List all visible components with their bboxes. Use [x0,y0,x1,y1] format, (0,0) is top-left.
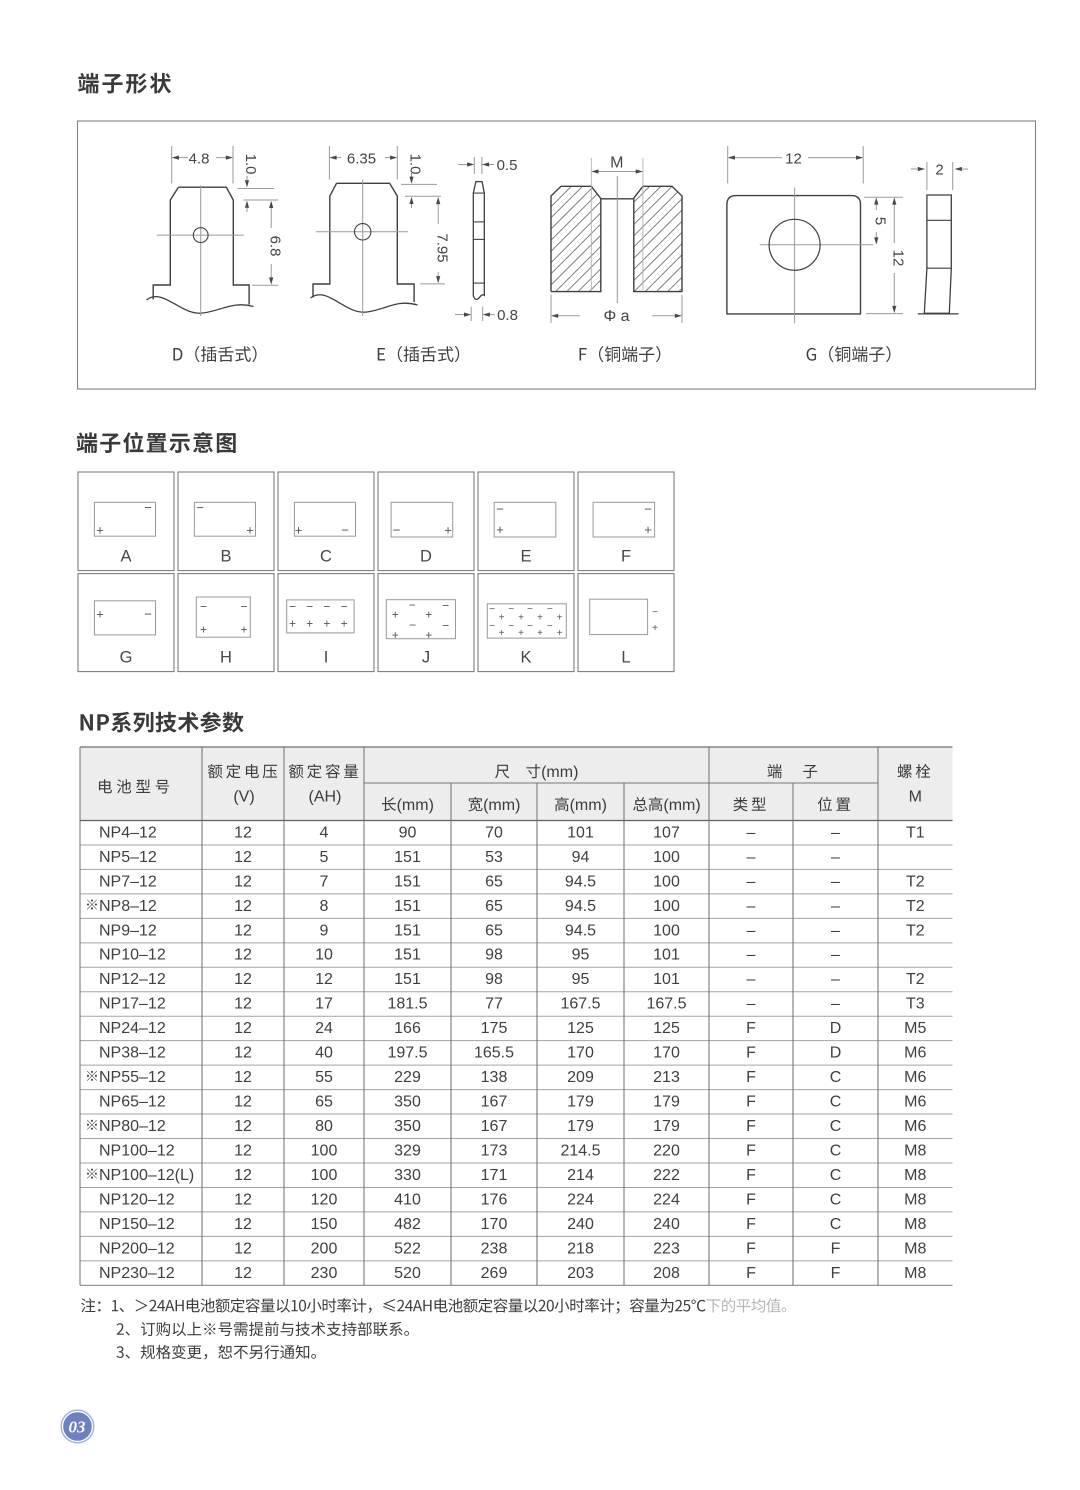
svg-text:NP17–12: NP17–12 [99,996,166,1013]
svg-text:100: 100 [311,1167,338,1184]
svg-text:M6: M6 [904,1094,926,1111]
svg-text:F: F [746,1045,756,1062]
svg-text:I: I [324,649,329,667]
svg-text:–: – [747,898,756,915]
svg-text:NP10–12: NP10–12 [99,947,166,964]
svg-text:179: 179 [567,1118,594,1135]
svg-text:(mm): (mm) [483,797,520,814]
svg-text:−: − [527,621,533,632]
svg-text:5: 5 [320,849,329,866]
svg-text:E: E [520,548,531,566]
svg-text:(mm): (mm) [541,764,578,781]
svg-text:269: 269 [481,1265,508,1282]
svg-text:+: + [246,523,254,538]
svg-text:M8: M8 [904,1167,926,1184]
svg-text:350: 350 [394,1094,421,1111]
svg-text:C: C [320,548,332,566]
svg-text:−: − [496,502,504,517]
svg-text:94: 94 [572,849,590,866]
svg-text:167.5: 167.5 [646,996,686,1013]
svg-text:167: 167 [481,1118,508,1135]
svg-text:151: 151 [394,873,421,890]
svg-text:–: – [747,824,756,841]
svg-text:–: – [747,947,756,964]
svg-text:NP9–12: NP9–12 [99,922,157,939]
svg-text:167.5: 167.5 [560,996,600,1013]
svg-text:NP8–12: NP8–12 [99,898,157,915]
svg-text:F: F [746,1069,756,1086]
svg-text:522: 522 [394,1240,421,1257]
svg-text:100: 100 [311,1142,338,1159]
svg-text:NP5–12: NP5–12 [99,849,157,866]
svg-text:213: 213 [653,1069,680,1086]
svg-text:+: + [295,523,303,538]
svg-text:7.95: 7.95 [434,233,451,262]
svg-text:NP120–12: NP120–12 [99,1191,175,1208]
svg-text:F: F [746,1167,756,1184]
svg-text:94.5: 94.5 [565,922,596,939]
svg-text:12: 12 [234,1240,252,1257]
svg-text:−: − [393,523,401,538]
svg-text:6.8: 6.8 [267,236,284,257]
svg-text:238: 238 [481,1240,508,1257]
svg-text:–: – [831,971,840,988]
svg-text:65: 65 [485,873,503,890]
svg-text:151: 151 [394,898,421,915]
svg-text:5: 5 [872,217,889,225]
svg-text:D: D [830,1045,842,1062]
svg-text:−: − [409,598,416,612]
svg-text:G: G [120,649,133,667]
svg-text:98: 98 [485,971,503,988]
svg-text:–: – [831,849,840,866]
svg-text:+: + [496,522,504,537]
svg-text:175: 175 [481,1020,508,1037]
svg-text:410: 410 [394,1191,421,1208]
svg-text:F: F [746,1142,756,1159]
svg-text:12: 12 [234,1118,252,1135]
svg-text:+: + [341,616,348,630]
svg-text:B: B [220,548,231,566]
svg-text:53: 53 [485,849,503,866]
svg-text:12: 12 [234,1069,252,1086]
svg-text:−: − [489,621,495,632]
svg-text:−: − [144,607,152,622]
svg-text:12: 12 [234,1265,252,1282]
svg-text:−: − [323,599,330,613]
svg-text:J: J [422,649,430,667]
svg-text:230: 230 [311,1265,338,1282]
svg-text:179: 179 [653,1118,680,1135]
svg-text:NP38–12: NP38–12 [99,1045,166,1062]
svg-text:138: 138 [481,1069,508,1086]
svg-text:NP12–12: NP12–12 [99,971,166,988]
svg-text:(mm): (mm) [570,797,607,814]
svg-text:T2: T2 [906,922,925,939]
svg-text:F: F [746,1020,756,1037]
svg-text:101: 101 [567,824,594,841]
svg-text:M8: M8 [904,1240,926,1257]
svg-text:−: − [527,604,533,615]
svg-text:520: 520 [394,1265,421,1282]
svg-text:–: – [831,873,840,890]
svg-text:12: 12 [234,996,252,1013]
svg-text:220: 220 [653,1142,680,1159]
svg-text:+: + [537,613,543,624]
svg-text:NP55–12: NP55–12 [99,1069,166,1086]
svg-text:12: 12 [234,1216,252,1233]
svg-text:(mm): (mm) [397,797,434,814]
svg-text:–: – [747,996,756,1013]
svg-text:200: 200 [311,1240,338,1257]
svg-text:197.5: 197.5 [387,1045,427,1062]
svg-text:C: C [830,1167,842,1184]
svg-text:−: − [341,523,349,538]
svg-text:151: 151 [394,922,421,939]
svg-text:179: 179 [653,1094,680,1111]
svg-text:–: – [747,971,756,988]
svg-text:170: 170 [481,1216,508,1233]
svg-text:12: 12 [315,971,333,988]
svg-text:0.5: 0.5 [497,157,518,174]
svg-text:T2: T2 [906,971,925,988]
svg-text:+: + [425,607,432,621]
svg-text:–: – [831,996,840,1013]
svg-text:F: F [621,548,631,566]
svg-text:NP4–12: NP4–12 [99,824,157,841]
svg-text:(AH): (AH) [309,789,342,806]
svg-text:–: – [747,849,756,866]
svg-text:M6: M6 [904,1045,926,1062]
svg-text:NP100–12: NP100–12 [99,1142,175,1159]
svg-text:+: + [425,628,432,642]
svg-text:−: − [644,502,652,517]
svg-text:12: 12 [234,849,252,866]
svg-text:2: 2 [935,162,943,179]
svg-text:107: 107 [653,824,680,841]
svg-text:D: D [420,548,432,566]
svg-text:−: − [306,599,313,613]
svg-text:1.0: 1.0 [407,154,424,175]
svg-text:D: D [830,1020,842,1037]
svg-text:330: 330 [394,1167,421,1184]
svg-text:214.5: 214.5 [560,1142,600,1159]
svg-text:12: 12 [234,1167,252,1184]
svg-text:98: 98 [485,947,503,964]
svg-text:NP150–12: NP150–12 [99,1216,175,1233]
svg-text:+: + [200,622,207,636]
svg-text:65: 65 [315,1094,333,1111]
svg-text:125: 125 [567,1020,594,1037]
svg-text:482: 482 [394,1216,421,1233]
svg-text:12: 12 [234,873,252,890]
svg-text:−: − [341,599,348,613]
svg-text:NP65–12: NP65–12 [99,1094,166,1111]
svg-text:4.8: 4.8 [189,150,210,167]
svg-text:F: F [746,1094,756,1111]
svg-text:218: 218 [567,1240,594,1257]
svg-text:12: 12 [234,1142,252,1159]
svg-text:−: − [442,618,449,632]
svg-text:+: + [652,623,658,634]
svg-text:−: − [409,618,416,632]
svg-text:8: 8 [320,898,329,915]
svg-text:203: 203 [567,1265,594,1282]
svg-text:70: 70 [485,824,503,841]
svg-text:M5: M5 [904,1020,926,1037]
svg-text:350: 350 [394,1118,421,1135]
svg-text:94.5: 94.5 [565,873,596,890]
svg-text:179: 179 [567,1094,594,1111]
svg-text:M8: M8 [904,1191,926,1208]
svg-text:224: 224 [567,1191,594,1208]
svg-text:151: 151 [394,971,421,988]
svg-text:176: 176 [481,1191,508,1208]
svg-text:(mm): (mm) [663,797,700,814]
svg-text:NP80–12: NP80–12 [99,1118,166,1135]
svg-text:−: − [144,500,152,515]
svg-text:100: 100 [653,922,680,939]
svg-text:T1: T1 [906,824,925,841]
svg-text:M8: M8 [904,1265,926,1282]
svg-text:80: 80 [315,1118,333,1135]
svg-text:12: 12 [234,824,252,841]
svg-text:+: + [557,628,563,639]
svg-text:−: − [196,500,204,515]
svg-text:M: M [610,155,623,172]
svg-text:240: 240 [567,1216,594,1233]
svg-text:181.5: 181.5 [387,996,427,1013]
svg-text:−: − [547,604,553,615]
svg-text:NP24–12: NP24–12 [99,1020,166,1037]
svg-text:151: 151 [394,849,421,866]
svg-text:150: 150 [311,1216,338,1233]
svg-text:−: − [652,607,658,618]
svg-text:+: + [537,628,543,639]
svg-text:94.5: 94.5 [565,898,596,915]
svg-text:229: 229 [394,1069,421,1086]
svg-text:77: 77 [485,996,503,1013]
svg-text:9: 9 [320,922,329,939]
svg-text:101: 101 [653,947,680,964]
svg-text:173: 173 [481,1142,508,1159]
svg-text:151: 151 [394,947,421,964]
svg-text:+: + [557,613,563,624]
svg-text:209: 209 [567,1069,594,1086]
svg-text:170: 170 [567,1045,594,1062]
svg-text:−: − [442,599,449,613]
svg-text:95: 95 [572,947,590,964]
svg-text:M6: M6 [904,1069,926,1086]
svg-text:F: F [746,1118,756,1135]
svg-text:−: − [200,599,207,613]
svg-text:100: 100 [653,873,680,890]
svg-text:100: 100 [653,898,680,915]
svg-text:+: + [518,613,524,624]
svg-text:12: 12 [234,898,252,915]
svg-text:90: 90 [399,824,417,841]
svg-text:171: 171 [481,1167,508,1184]
svg-text:−: − [240,599,247,613]
svg-text:L: L [621,649,630,667]
svg-text:M8: M8 [904,1142,926,1159]
svg-text:+: + [644,522,652,537]
svg-text:−: − [289,599,296,613]
svg-text:12: 12 [234,947,252,964]
svg-text:55: 55 [315,1069,333,1086]
svg-text:120: 120 [311,1191,338,1208]
svg-text:Φ a: Φ a [603,308,629,325]
svg-text:12: 12 [234,1191,252,1208]
svg-text:7: 7 [320,873,329,890]
svg-text:T2: T2 [906,873,925,890]
svg-text:214: 214 [567,1167,594,1184]
svg-text:125: 125 [653,1020,680,1037]
svg-text:–: – [831,898,840,915]
svg-text:165.5: 165.5 [474,1045,514,1062]
svg-text:C: C [830,1191,842,1208]
svg-text:65: 65 [485,898,503,915]
svg-text:NP230–12: NP230–12 [99,1265,175,1282]
svg-text:C: C [830,1094,842,1111]
svg-text:NP100–12(L): NP100–12(L) [99,1167,194,1184]
svg-text:1.0: 1.0 [242,154,259,175]
svg-text:65: 65 [485,922,503,939]
svg-text:224: 224 [653,1191,680,1208]
svg-text:C: C [830,1216,842,1233]
svg-text:(V): (V) [233,789,254,806]
svg-text:167: 167 [481,1094,508,1111]
svg-text:+: + [96,523,104,538]
svg-text:6.35: 6.35 [347,150,376,167]
svg-text:+: + [499,613,505,624]
svg-text:100: 100 [653,849,680,866]
svg-text:+: + [444,523,452,538]
svg-text:+: + [323,616,330,630]
svg-text:223: 223 [653,1240,680,1257]
svg-text:M8: M8 [904,1216,926,1233]
svg-text:F: F [746,1265,756,1282]
svg-text:M: M [909,789,922,806]
svg-text:12: 12 [234,1020,252,1037]
svg-text:–: – [831,922,840,939]
svg-text:10: 10 [315,947,333,964]
svg-text:17: 17 [315,996,333,1013]
svg-text:40: 40 [315,1045,333,1062]
svg-text:12: 12 [890,250,907,267]
svg-text:A: A [120,548,131,566]
svg-text:NP7–12: NP7–12 [99,873,157,890]
svg-text:12: 12 [234,1094,252,1111]
svg-text:12: 12 [234,922,252,939]
svg-text:95: 95 [572,971,590,988]
svg-text:F: F [746,1240,756,1257]
svg-text:+: + [392,628,399,642]
svg-text:–: – [831,947,840,964]
svg-text:101: 101 [653,971,680,988]
svg-text:C: C [830,1069,842,1086]
svg-text:4: 4 [320,824,329,841]
svg-text:+: + [306,616,313,630]
svg-text:−: − [547,621,553,632]
svg-text:+: + [392,607,399,621]
svg-text:222: 222 [653,1167,680,1184]
svg-text:329: 329 [394,1142,421,1159]
svg-text:M6: M6 [904,1118,926,1135]
svg-text:+: + [240,622,247,636]
svg-text:–: – [831,824,840,841]
svg-text:F: F [746,1216,756,1233]
svg-text:C: C [830,1142,842,1159]
svg-text:NP200–12: NP200–12 [99,1240,175,1257]
svg-text:03: 03 [69,1418,87,1437]
svg-text:+: + [289,616,296,630]
svg-text:0.8: 0.8 [497,307,518,324]
svg-text:24: 24 [315,1020,333,1037]
svg-text:12: 12 [234,1045,252,1062]
svg-text:−: − [508,604,514,615]
svg-text:C: C [830,1118,842,1135]
svg-text:240: 240 [653,1216,680,1233]
svg-text:F: F [831,1265,841,1282]
svg-text:208: 208 [653,1265,680,1282]
svg-text:F: F [746,1191,756,1208]
svg-text:+: + [518,628,524,639]
svg-text:K: K [520,649,531,667]
svg-text:−: − [489,604,495,615]
svg-text:T2: T2 [906,898,925,915]
svg-text:–: – [747,922,756,939]
svg-text:T3: T3 [906,996,925,1013]
svg-text:+: + [96,607,104,622]
svg-text:–: – [747,873,756,890]
svg-text:12: 12 [234,971,252,988]
svg-text:170: 170 [653,1045,680,1062]
svg-text:−: − [508,621,514,632]
svg-text:12: 12 [785,150,802,167]
svg-text:H: H [220,649,232,667]
svg-text:F: F [831,1240,841,1257]
svg-text:+: + [499,628,505,639]
svg-text:166: 166 [394,1020,421,1037]
